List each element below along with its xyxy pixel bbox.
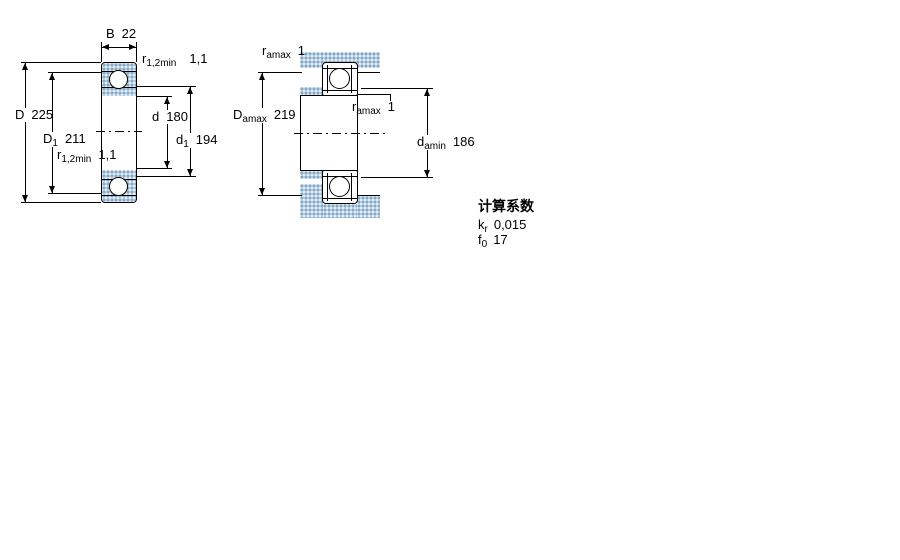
- extension-line: [361, 88, 433, 89]
- housing-bore-line: [357, 72, 380, 73]
- dimension-line-Damax: [262, 72, 263, 195]
- extension-line: [136, 42, 137, 62]
- arrowhead: [102, 44, 109, 50]
- cage-line: [351, 173, 352, 201]
- dim-label-damin: damin186: [415, 135, 477, 150]
- arrowhead: [164, 97, 170, 104]
- arrowhead: [259, 73, 265, 80]
- bearing-drawing-canvas: B22 r1,2min1,1 D225 D1211 r1,2min1,1: [0, 0, 900, 560]
- ball: [109, 70, 128, 89]
- dimension-line-d1: [190, 86, 191, 177]
- dim-label-D: D225: [13, 108, 55, 122]
- centerline: [96, 131, 142, 132]
- ball: [329, 176, 350, 197]
- centerline: [294, 133, 386, 134]
- extension-line: [21, 62, 101, 63]
- arrowhead: [187, 169, 193, 176]
- ball: [109, 177, 128, 196]
- dim-label-r12min-top: r1,2min1,1: [142, 52, 207, 67]
- cage-line: [327, 173, 328, 201]
- arrowhead: [129, 44, 136, 50]
- cage-line: [351, 65, 352, 93]
- arrowhead: [259, 188, 265, 195]
- dim-label-B: B22: [106, 27, 136, 41]
- dim-label-D1: D1211: [41, 132, 88, 147]
- ball: [329, 68, 350, 89]
- arrowhead: [164, 161, 170, 168]
- housing-bore-line: [357, 195, 380, 196]
- arrowhead: [22, 195, 28, 202]
- shaft-shoulder-block: [300, 171, 323, 179]
- arrowhead: [49, 73, 55, 80]
- extension-line: [48, 193, 101, 194]
- arrowhead: [187, 87, 193, 94]
- housing-block-bottom-center: [323, 204, 357, 218]
- leader-line: [358, 94, 390, 95]
- extension-line: [21, 202, 101, 203]
- dim-label-d: d180: [150, 110, 190, 124]
- arrowhead: [22, 63, 28, 70]
- factor-kr: kr0,015: [478, 217, 526, 232]
- extension-line: [137, 176, 196, 177]
- cage-line: [327, 65, 328, 93]
- dim-label-Damax: Damax219: [231, 108, 298, 123]
- dimension-line-d: [167, 96, 168, 169]
- dim-label-r12min-bottom: r1,2min1,1: [57, 148, 116, 163]
- factor-f0: f017: [478, 232, 508, 247]
- dimension-line-D: [25, 62, 26, 203]
- calculation-factors-title: 计算系数: [478, 196, 534, 216]
- arrowhead: [424, 89, 430, 96]
- extension-line: [48, 72, 101, 73]
- mounted-bearing-top: [322, 62, 358, 96]
- shaft-shoulder-block: [300, 87, 323, 95]
- arrowhead: [49, 186, 55, 193]
- dim-label-ramax-housing: ramax1: [262, 44, 305, 59]
- extension-line: [361, 177, 433, 178]
- housing-block-bottom-left: [300, 184, 323, 218]
- dim-label-d1: d1194: [174, 133, 220, 148]
- dim-label-ramax-shaft: ramax1: [352, 100, 395, 115]
- extension-line: [258, 195, 302, 196]
- dimension-line-damin: [427, 88, 428, 178]
- bearing-cross-section: [101, 62, 137, 203]
- arrowhead: [424, 170, 430, 177]
- mounted-bearing-bottom: [322, 170, 358, 204]
- housing-block-bottom-right: [357, 196, 380, 218]
